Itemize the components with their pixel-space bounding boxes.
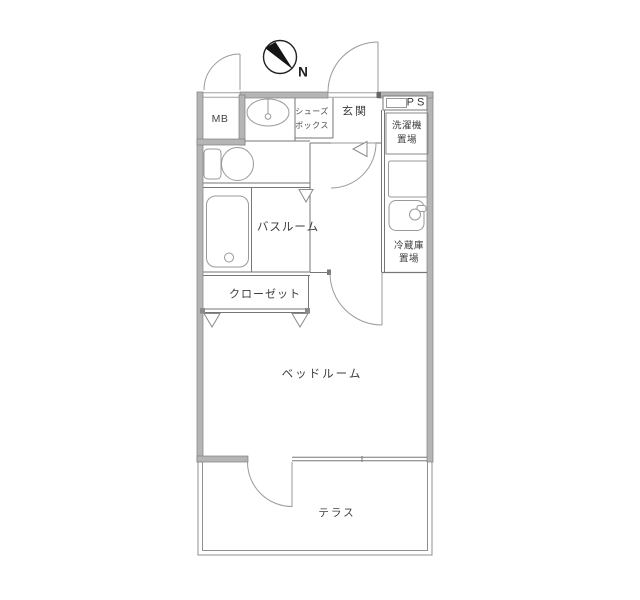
north-compass-icon (264, 41, 297, 74)
terrace-label: テラス (318, 508, 355, 519)
wall-bottom-left (197, 456, 248, 462)
closet-label: クローゼット (229, 290, 301, 301)
walls (197, 92, 433, 462)
terrace-outline (198, 462, 432, 555)
wall-mb-bottom (197, 139, 245, 145)
entrance-door-jamb (377, 92, 382, 98)
bedroom-label: ベッドルーム (282, 369, 363, 381)
washbasin-icon (247, 98, 289, 126)
north-label: N (298, 65, 308, 79)
shoe-box-label-line2: ボックス (295, 122, 329, 130)
stove-icon (389, 161, 428, 197)
closet-door-marker-right (292, 314, 308, 328)
wall-top-middle (240, 92, 328, 98)
bath-door-marker (299, 190, 313, 203)
wall-left (197, 92, 203, 462)
fridge-label-line2: 置場 (399, 254, 419, 264)
kitchen-sink-icon (389, 201, 426, 231)
mb-door-arc (204, 54, 240, 90)
mb-label: MB (212, 114, 229, 125)
washer-label-line2: 置場 (397, 135, 417, 145)
closet-door-marker-left (204, 314, 220, 328)
fridge-label-line1: 冷蔵庫 (394, 241, 424, 251)
washer-label-line1: 洗濯機 (392, 121, 422, 131)
bathtub-icon (207, 196, 249, 267)
toilet-icon (204, 148, 254, 181)
closet-jamb-left (200, 308, 205, 314)
entrance-door-arc (328, 42, 378, 92)
terrace-window (292, 456, 427, 462)
terrace-door-arc (248, 462, 293, 507)
wall-mb-right (239, 95, 245, 145)
bathroom-label: バスルーム (257, 222, 319, 234)
ps-label: PS (407, 98, 428, 109)
floor-plan: N MB PS シューズ ボックス 玄関 洗濯機 置場 冷蔵庫 置場 バスルーム… (0, 0, 640, 600)
closet-jamb-right (305, 308, 310, 314)
entrance-label: 玄関 (342, 107, 368, 118)
bedroom-door-arc (330, 273, 382, 325)
shoe-box-label-line1: シューズ (295, 108, 329, 116)
entrance-step-marker (353, 142, 367, 157)
